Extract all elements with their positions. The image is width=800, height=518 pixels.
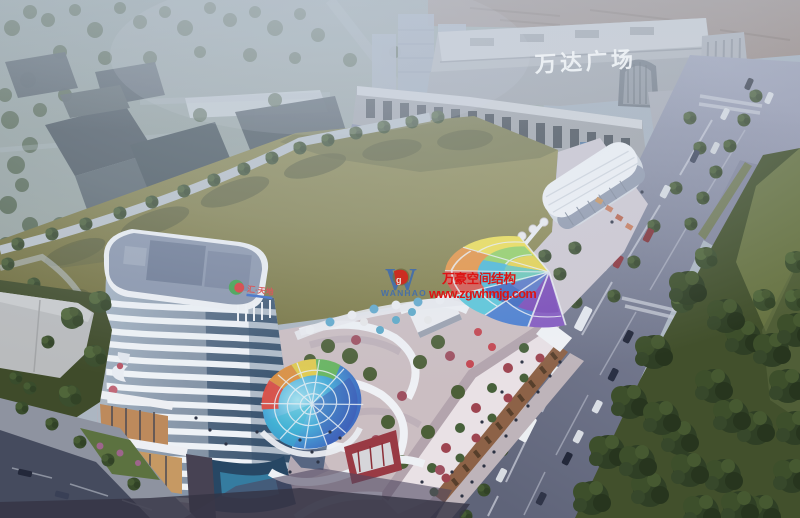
svg-text:g: g [396,275,402,285]
svg-text:万豪空间结构: 万豪空间结构 [441,271,516,286]
svg-text:WANHAO: WANHAO [381,288,427,298]
svg-text:www.zgwhmjg.com: www.zgwhmjg.com [428,286,536,301]
